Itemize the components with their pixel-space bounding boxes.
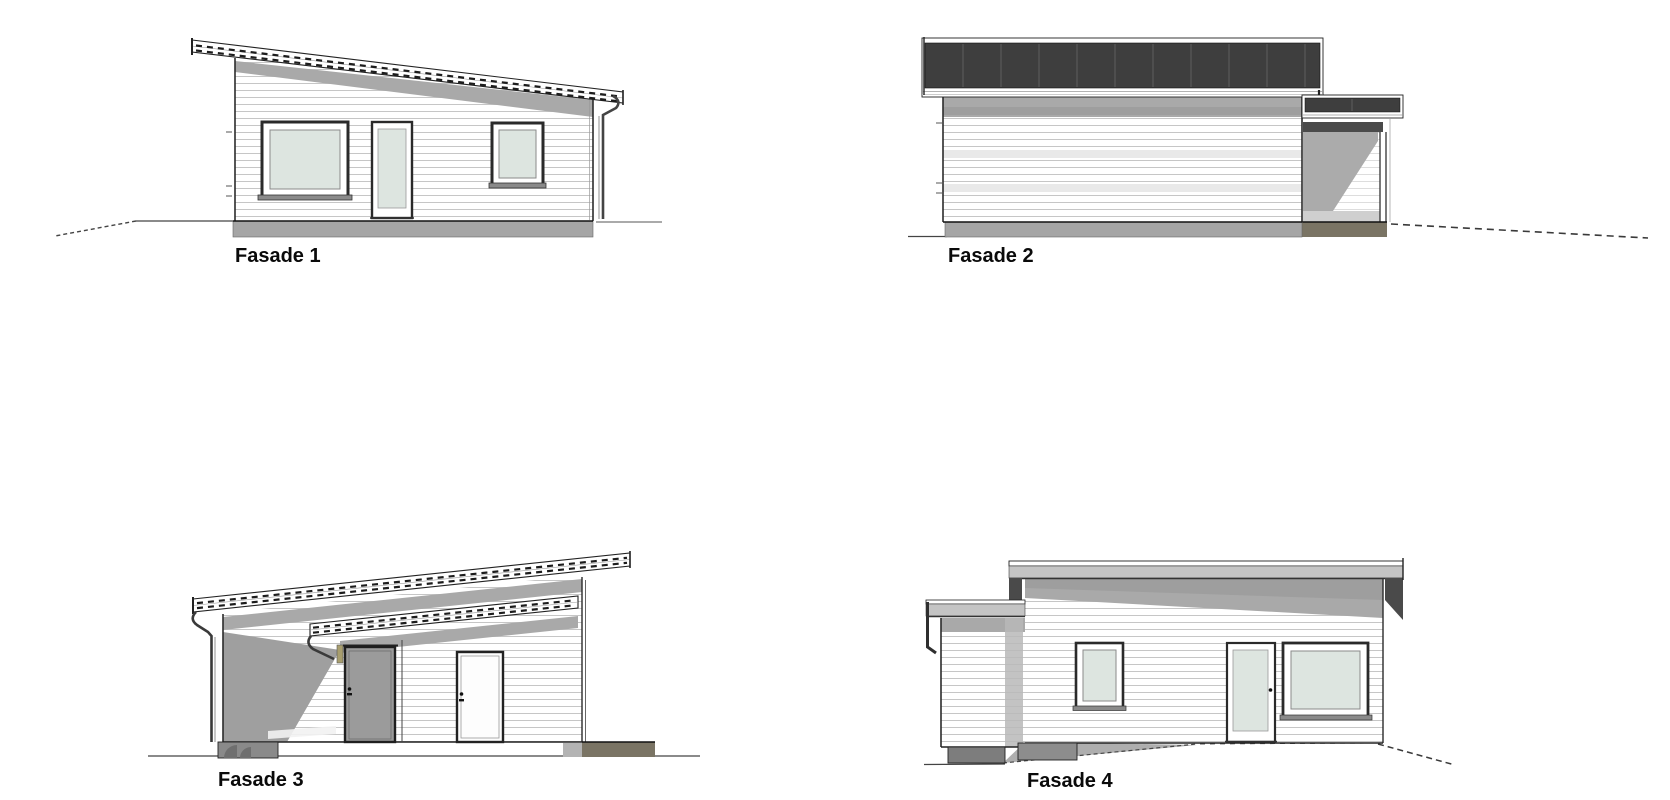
carport [926,600,1025,763]
footing-step [563,743,582,757]
carport-fascia [926,604,1025,616]
fasade-1-elevation [55,38,662,237]
fascia-return-left [1009,578,1022,600]
terrain-dashed-line [55,221,136,236]
fasade-4-label: Fasade 4 [1027,770,1113,792]
window-sill [1280,715,1372,720]
eave-shadow-dark [943,107,1302,115]
fasade-3-elevation [148,551,700,758]
foundation [233,221,593,237]
footing-left [218,742,278,758]
door-lock [459,699,464,701]
window-large [258,122,352,200]
carport-fascia-top [926,600,1025,604]
door-handle [348,687,352,691]
level-ticks [936,123,942,193]
level-ticks [226,132,232,196]
downspout [603,96,618,219]
fasade-4-elevation [924,558,1455,765]
siding-band [943,150,1302,158]
elevation-sheet: Fasade 1 [0,0,1670,800]
glazed-door [370,122,414,218]
siding-band [943,184,1302,192]
carport-corner-shade [1005,618,1023,747]
side-door-white [457,652,503,742]
roof [922,37,1323,104]
fasade-2-elevation [908,37,1648,238]
fasade-2-label: Fasade 2 [948,245,1034,267]
terrain-dashed-line [1378,744,1455,765]
window-small [1073,643,1126,711]
footing-left [1018,743,1077,760]
fasade-3-label: Fasade 3 [218,769,304,791]
carport-footing [948,747,1005,763]
ground-line [924,764,1005,765]
door-handle [1269,688,1273,692]
entry-door-gray [343,646,398,743]
footing-right [582,742,655,757]
foundation [945,222,1302,237]
carport [1302,95,1403,237]
downspout [193,612,212,742]
window-small [489,123,546,188]
window-sill [258,195,352,200]
door-lock [347,693,352,695]
fascia-return-right [1385,578,1403,620]
window-sill [489,183,546,188]
terrain-dashed-line [1391,224,1648,238]
glazed-door [1225,643,1277,742]
door-handle [460,692,464,696]
fasade-1-label: Fasade 1 [235,245,321,267]
window-sill [1073,706,1126,711]
carport-floor-strip [1303,211,1380,222]
carport-footing [1302,222,1387,237]
elevation-drawing-svg: Fasade 1 [0,0,1670,800]
carport-beam-shadow [1303,122,1383,132]
canopy-post-trim [337,645,343,663]
window-large [1280,643,1372,720]
